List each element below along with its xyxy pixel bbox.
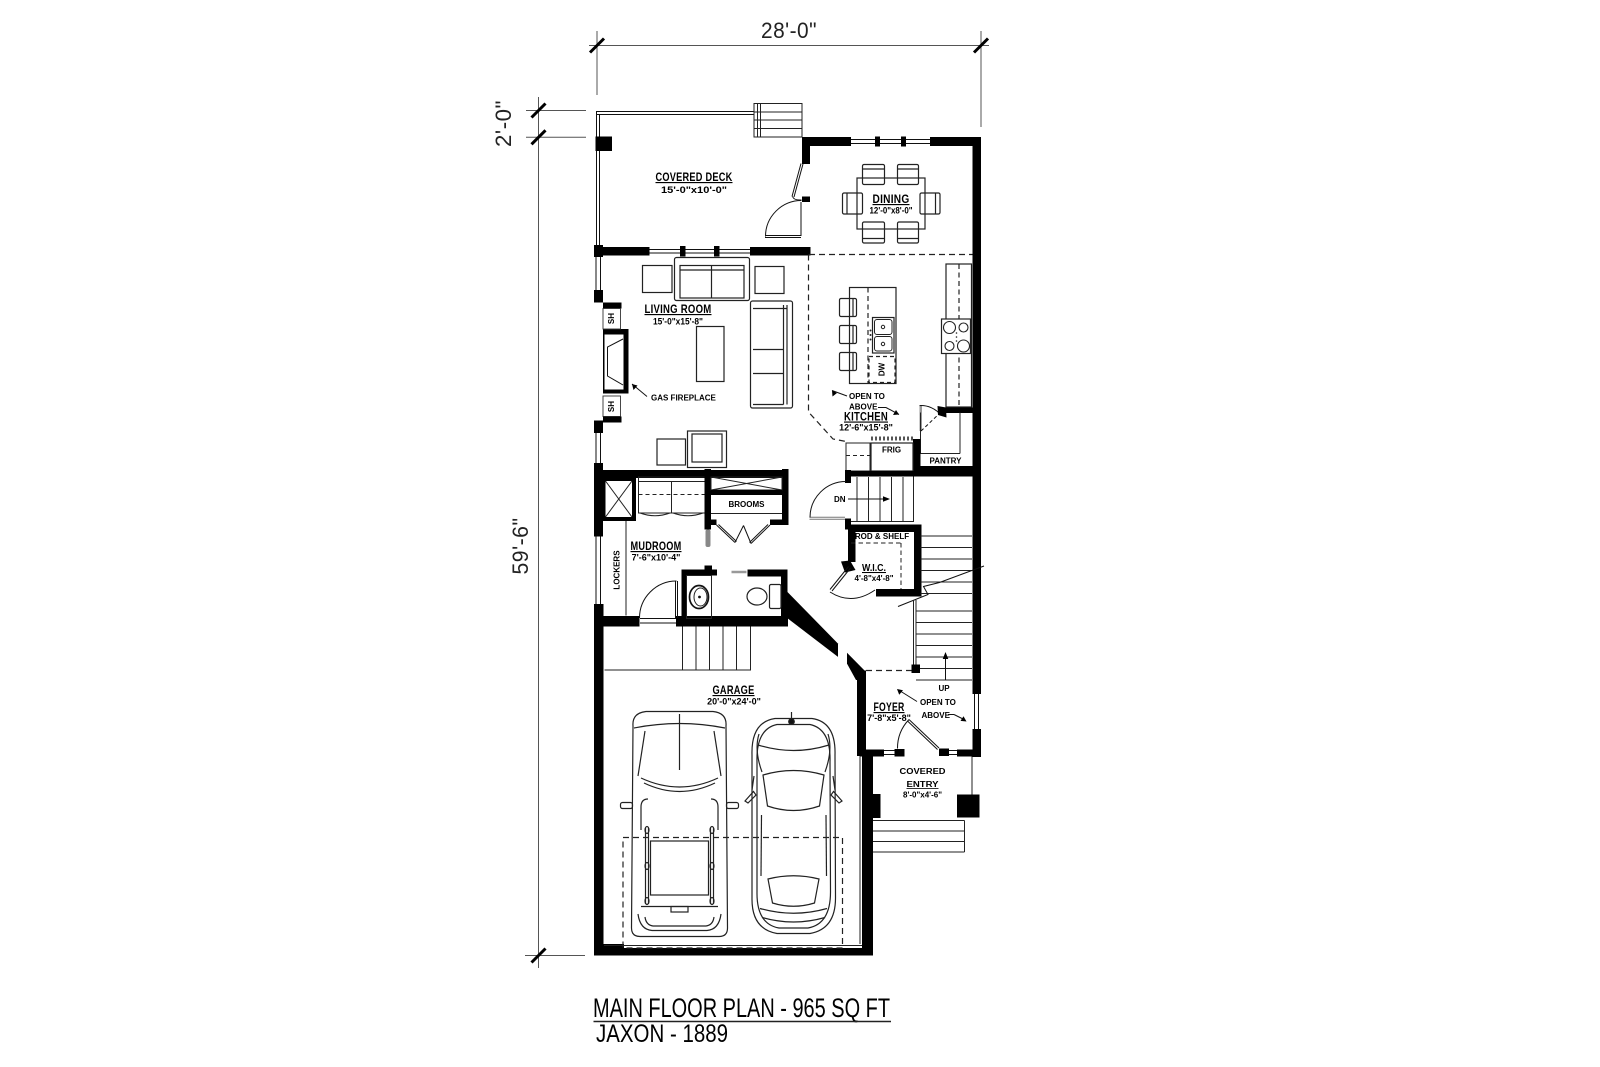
svg-text:20'-0"x24'-0": 20'-0"x24'-0": [707, 697, 761, 707]
svg-text:15'-0"x10'-0": 15'-0"x10'-0": [661, 185, 727, 195]
svg-text:SH: SH: [607, 401, 616, 412]
svg-text:LOCKERS: LOCKERS: [613, 550, 622, 590]
svg-text:FRIG: FRIG: [882, 446, 901, 455]
svg-text:GARAGE: GARAGE: [713, 685, 755, 697]
svg-text:W.I.C.: W.I.C.: [862, 562, 886, 574]
svg-text:UP: UP: [938, 684, 950, 693]
svg-text:28'-0": 28'-0": [761, 18, 817, 43]
svg-text:PANTRY: PANTRY: [930, 457, 963, 466]
svg-text:SH: SH: [607, 313, 616, 324]
svg-text:COVERED: COVERED: [900, 767, 946, 776]
svg-text:ENTRY: ENTRY: [907, 780, 940, 789]
svg-text:15'-0"x15'-8": 15'-0"x15'-8": [653, 317, 703, 327]
svg-text:DN: DN: [834, 495, 846, 504]
svg-text:12'-6"x15'-8": 12'-6"x15'-8": [839, 423, 893, 433]
svg-text:59'-6": 59'-6": [508, 518, 533, 575]
svg-text:MAIN FLOOR PLAN - 965 SQ FT: MAIN FLOOR PLAN - 965 SQ FT: [593, 993, 890, 1023]
svg-text:OPEN TO: OPEN TO: [849, 392, 885, 401]
svg-text:GAS FIREPLACE: GAS FIREPLACE: [651, 394, 717, 403]
svg-text:LIVING ROOM: LIVING ROOM: [645, 304, 712, 316]
svg-text:2'-0": 2'-0": [491, 100, 516, 147]
svg-text:8'-0"x4'-6": 8'-0"x4'-6": [903, 791, 942, 800]
svg-text:DW: DW: [878, 362, 887, 376]
svg-text:BROOMS: BROOMS: [729, 500, 766, 509]
svg-text:OPEN TO: OPEN TO: [920, 698, 956, 707]
svg-text:ABOVE: ABOVE: [922, 711, 951, 720]
svg-text:4'-8"x4'-8": 4'-8"x4'-8": [855, 574, 894, 583]
svg-text:12'-0"x8'-0": 12'-0"x8'-0": [870, 206, 913, 216]
svg-text:7'-6"x10'-4": 7'-6"x10'-4": [632, 553, 681, 563]
svg-text:ABOVE: ABOVE: [849, 403, 878, 412]
svg-text:COVERED DECK: COVERED DECK: [656, 172, 733, 184]
svg-text:7'-8"x5'-8": 7'-8"x5'-8": [867, 713, 911, 723]
svg-text:DINING: DINING: [873, 194, 910, 206]
svg-text:JAXON - 1889: JAXON - 1889: [596, 1020, 728, 1048]
svg-text:MUDROOM: MUDROOM: [631, 541, 682, 553]
svg-text:ROD & SHELF: ROD & SHELF: [855, 532, 909, 541]
